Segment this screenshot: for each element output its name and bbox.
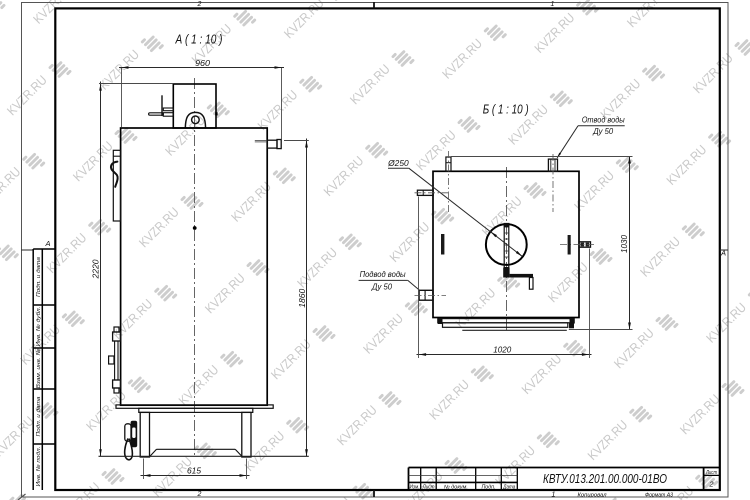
svg-text:Копировал: Копировал [578, 492, 607, 498]
svg-text:Инв. № подл.: Инв. № подл. [36, 447, 42, 487]
svg-text:Формат А3: Формат А3 [645, 492, 673, 498]
svg-text:Подп. и дата: Подп. и дата [36, 256, 42, 297]
svg-text:1020: 1020 [493, 345, 511, 355]
svg-text:Ду 50: Ду 50 [371, 282, 392, 292]
svg-text:960: 960 [195, 58, 210, 68]
svg-text:Подп. и дата: Подп. и дата [36, 396, 42, 437]
svg-text:Отвод воды: Отвод воды [582, 115, 626, 125]
svg-text:Подвод воды: Подвод воды [360, 269, 407, 279]
svg-text:1030: 1030 [619, 235, 629, 253]
svg-text:Лист: Лист [422, 485, 436, 491]
svg-text:Лист: Лист [705, 470, 717, 476]
svg-text:Изм.: Изм. [410, 485, 420, 491]
svg-text:Подп.: Подп. [482, 485, 496, 491]
svg-text:1860: 1860 [297, 288, 307, 307]
svg-text:А ( 1 : 10 ): А ( 1 : 10 ) [175, 32, 223, 47]
svg-text:Ду 50: Ду 50 [592, 126, 613, 136]
svg-text:Ø250: Ø250 [387, 158, 409, 168]
svg-text:615: 615 [187, 466, 201, 476]
svg-text:2: 2 [708, 480, 714, 489]
svg-text:2: 2 [197, 491, 202, 498]
svg-text:2220: 2220 [91, 259, 101, 279]
svg-text:КВТУ.013.201.00.000-01ВО: КВТУ.013.201.00.000-01ВО [543, 472, 667, 486]
svg-text:2: 2 [197, 1, 202, 8]
svg-text:Взам. инв. №: Взам. инв. № [36, 349, 42, 389]
svg-text:Б ( 1 : 10 ): Б ( 1 : 10 ) [483, 102, 529, 117]
svg-text:1: 1 [551, 1, 555, 8]
svg-text:№ докум.: № докум. [444, 485, 468, 491]
svg-text:Дата: Дата [502, 485, 515, 491]
svg-text:А: А [44, 239, 50, 248]
svg-text:Инв. № дубл.: Инв. № дубл. [36, 307, 42, 347]
svg-text:1: 1 [552, 491, 556, 498]
